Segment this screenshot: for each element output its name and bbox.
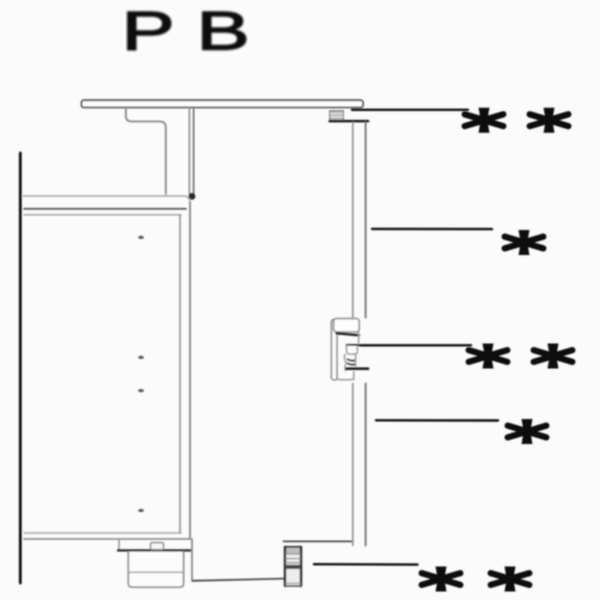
- svg-text:PB: PB: [122, 0, 272, 62]
